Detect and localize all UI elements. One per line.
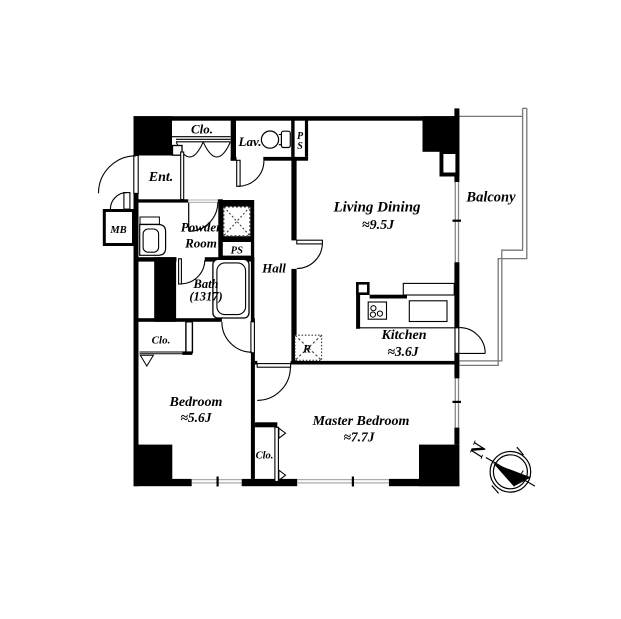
svg-text:Balcony: Balcony — [465, 190, 516, 206]
svg-text:≈7.7J: ≈7.7J — [343, 430, 375, 445]
svg-text:Ent.: Ent. — [148, 170, 174, 185]
svg-text:Kitchen: Kitchen — [380, 328, 426, 343]
svg-text:≈9.5J: ≈9.5J — [362, 218, 395, 233]
svg-text:S: S — [297, 141, 303, 152]
svg-text:R: R — [302, 342, 311, 356]
svg-text:Lav.: Lav. — [238, 134, 262, 149]
svg-text:Clo.: Clo. — [152, 335, 171, 347]
svg-text:Clo.: Clo. — [256, 451, 274, 462]
svg-text:Master Bedroom: Master Bedroom — [312, 414, 410, 429]
svg-text:PS: PS — [231, 246, 243, 257]
svg-text:Room: Room — [184, 236, 217, 251]
svg-text:MB: MB — [109, 225, 126, 236]
svg-text:Powder: Powder — [181, 220, 222, 235]
svg-text:≈5.6J: ≈5.6J — [180, 410, 212, 425]
svg-text:(1317): (1317) — [189, 290, 222, 304]
svg-text:Bedroom: Bedroom — [169, 395, 223, 410]
svg-text:Living Dining: Living Dining — [332, 200, 421, 216]
svg-text:Hall: Hall — [261, 261, 286, 276]
svg-text:Clo.: Clo. — [191, 122, 213, 137]
svg-text:≈3.6J: ≈3.6J — [387, 344, 419, 359]
